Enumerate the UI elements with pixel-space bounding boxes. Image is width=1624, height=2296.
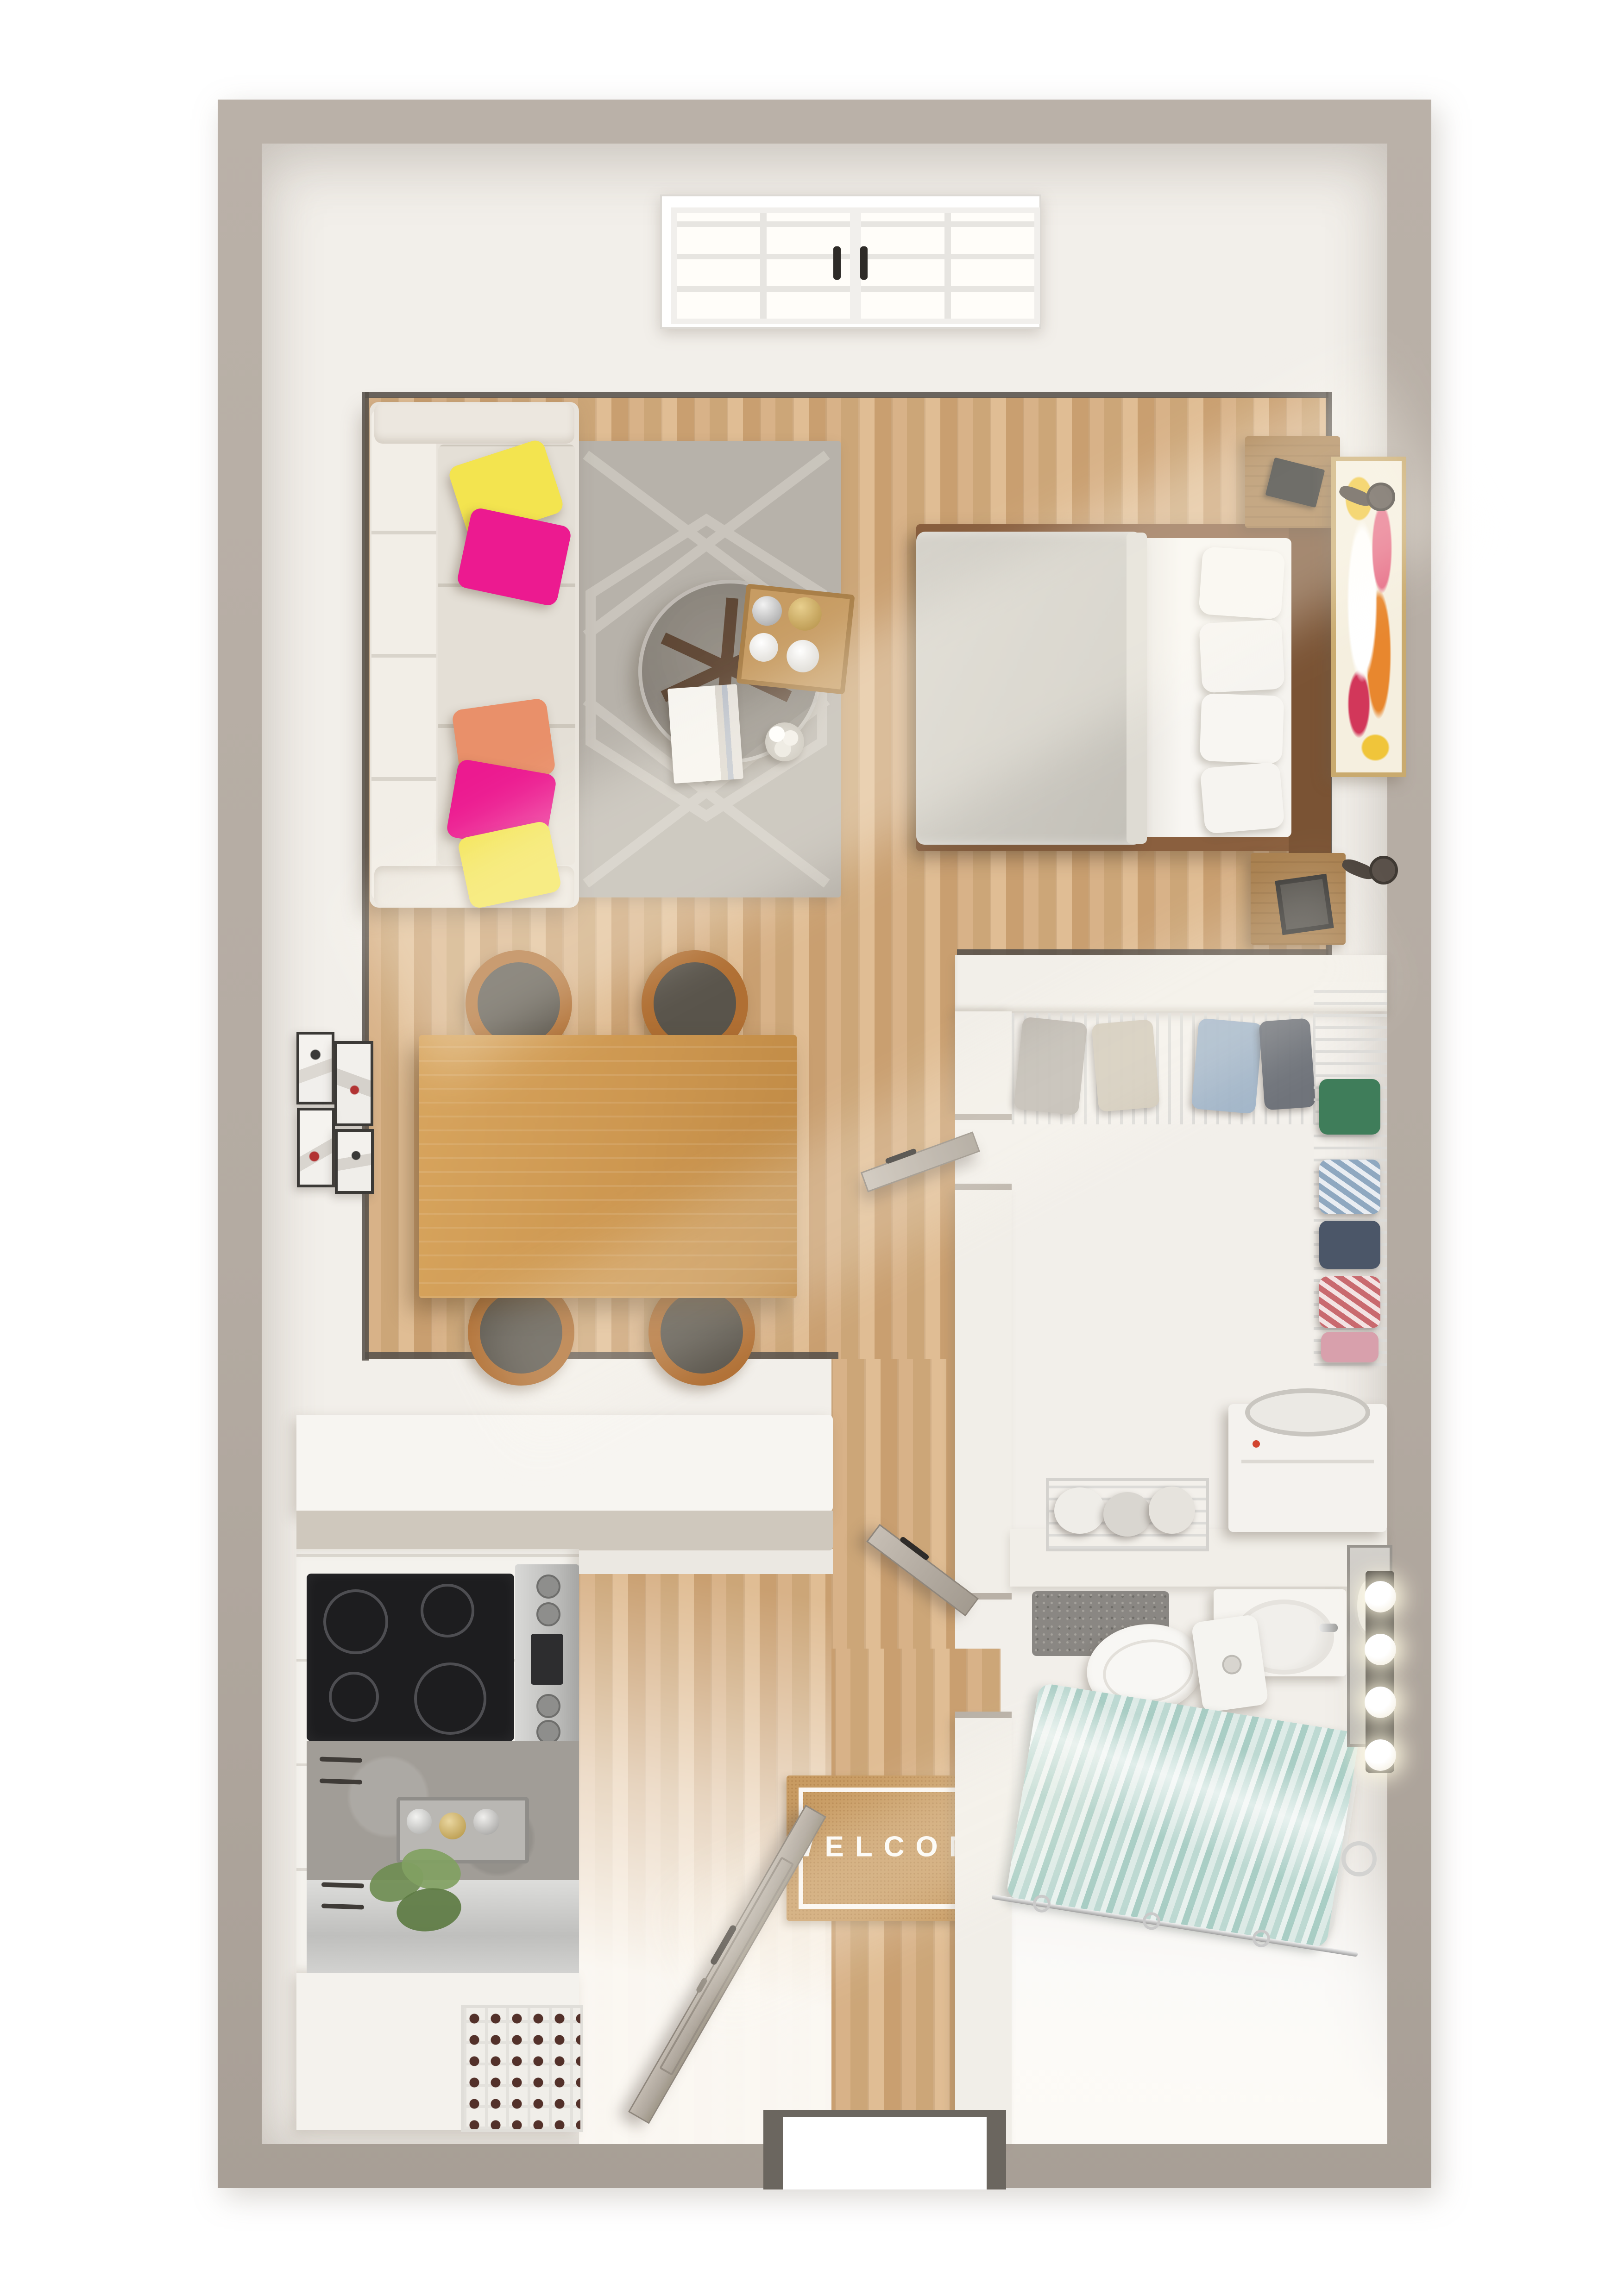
towel-ring <box>1341 1841 1377 1876</box>
folded-clothes-green <box>1319 1079 1380 1135</box>
coffee-table-books <box>667 684 743 784</box>
wine-rack <box>461 2005 583 2132</box>
coffee-table-vase <box>765 722 804 761</box>
washer-lid <box>1245 1388 1370 1437</box>
casement-window <box>660 194 1041 329</box>
nightstand-bottom <box>1251 853 1346 945</box>
washer-control-light <box>1253 1440 1260 1448</box>
bed-blanket-gray <box>916 532 1145 845</box>
nightstand-top <box>1245 436 1340 528</box>
baseboard-trim-top <box>365 392 1328 398</box>
range-knob-4 <box>536 1720 560 1744</box>
wall-lamp-top-disc <box>1366 483 1395 511</box>
range-knob-2 <box>536 1602 560 1626</box>
closet-laundry-basket <box>1046 1478 1209 1551</box>
closet-doorway-jamb-top <box>955 1114 1012 1120</box>
sofa-back-cushions <box>371 409 436 900</box>
range-knob-3 <box>536 1694 560 1718</box>
window-sash-left <box>671 207 856 324</box>
spice-jar-1 <box>407 1809 432 1834</box>
kitchen-plant <box>369 1850 471 1938</box>
washer-panel-line <box>1241 1460 1374 1463</box>
dining-table <box>419 1035 797 1298</box>
vanity-bulb-4 <box>1365 1739 1396 1771</box>
nightstand-top-book <box>1265 458 1325 508</box>
folded-clothes-navy <box>1319 1221 1380 1269</box>
gallery-frame-4 <box>335 1129 374 1194</box>
basket-linens-3 <box>1149 1487 1195 1534</box>
window-sash-right <box>856 207 1040 324</box>
vanity-bulb-1 <box>1365 1581 1396 1612</box>
wall-corridor-middle <box>955 1190 1012 1593</box>
spice-jar-3 <box>473 1809 499 1835</box>
folded-clothes-striped-red <box>1319 1276 1380 1328</box>
vanity-bulb-3 <box>1365 1687 1396 1718</box>
tray-silver-ornament <box>751 595 783 627</box>
range-control-display <box>531 1634 563 1685</box>
cooktop-burner-2 <box>421 1584 474 1637</box>
coffee-table-wood-tray <box>736 583 855 694</box>
window-handle-left <box>833 246 841 280</box>
peninsula-counter-top <box>296 1415 833 1512</box>
bed-pillow-1 <box>1198 546 1285 620</box>
vanity-bulb-2 <box>1365 1634 1396 1665</box>
shoes-pink <box>1321 1332 1379 1362</box>
window-handle-right <box>860 246 868 280</box>
front-door-opening <box>783 2117 987 2189</box>
range-knob-1 <box>536 1575 560 1599</box>
tray-white-bowl-1 <box>748 632 780 663</box>
hanging-clothes-beige <box>1091 1019 1160 1112</box>
nightstand-bottom-frame <box>1275 874 1334 935</box>
cooktop-burner-3 <box>329 1672 379 1722</box>
bath-doorway-jamb-bottom <box>955 1712 1012 1718</box>
bed-headboard <box>1289 507 1331 868</box>
bed-pillow-2 <box>1199 619 1285 693</box>
baseboard-trim-dining <box>365 1352 838 1359</box>
sofa-armrest-top <box>374 403 574 444</box>
tray-white-bowl-2 <box>785 638 821 674</box>
bed-pillow-4 <box>1200 762 1285 834</box>
basket-linens-2 <box>1103 1492 1152 1537</box>
gallery-frame-3 <box>297 1108 335 1187</box>
tray-gold-ornament <box>787 596 823 632</box>
spice-jar-2 <box>439 1813 466 1839</box>
bed-sheet-fold <box>1140 538 1210 837</box>
corridor-floor <box>831 1359 955 1686</box>
oven-range-front <box>515 1564 579 1746</box>
gallery-frame-1 <box>296 1032 334 1104</box>
hanging-clothes-gray <box>1013 1016 1088 1116</box>
hanging-clothes-dark <box>1259 1018 1316 1110</box>
hanging-clothes-blue <box>1191 1018 1263 1114</box>
folded-clothes-striped-blue <box>1319 1160 1380 1214</box>
peninsula-counter-edge <box>296 1511 833 1550</box>
cooktop-burner-1 <box>323 1589 388 1654</box>
basket-linens-1 <box>1054 1487 1105 1534</box>
closet-doorway-jamb-bottom <box>955 1184 1012 1190</box>
gallery-frame-2 <box>334 1041 373 1126</box>
closet-wire-shelf-right <box>1314 982 1387 1366</box>
closet-wire-shelf-top <box>1012 1013 1317 1124</box>
cooktop <box>307 1574 514 1741</box>
washer <box>1228 1404 1387 1532</box>
wall-corridor-upper <box>955 1011 1012 1114</box>
vanity-faucet <box>1319 1624 1338 1632</box>
baseboard-trim-left <box>362 392 369 1361</box>
bed-pillow-3 <box>1200 693 1284 764</box>
wall-lamp-bottom-disc <box>1369 856 1398 885</box>
cooktop-burner-4 <box>414 1662 486 1735</box>
bathtub-group <box>999 1682 1392 1995</box>
bed-blanket-fold-edge <box>1127 533 1147 844</box>
floor-plan-scene: WELCOME <box>0 0 1624 2296</box>
